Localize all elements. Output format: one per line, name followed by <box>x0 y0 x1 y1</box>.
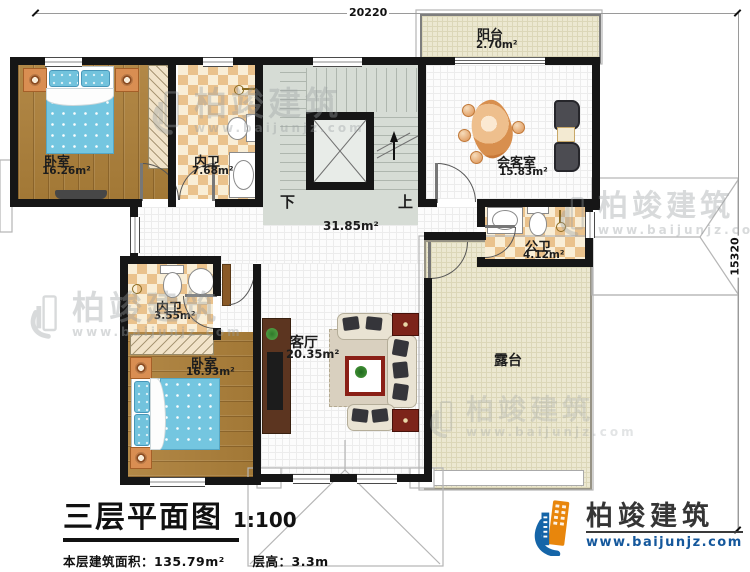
room-area-bedroom-tl: 16.26m² <box>42 165 91 177</box>
dimension-top-value: 20220 <box>347 6 389 19</box>
plan-scale: 1:100 <box>233 508 297 532</box>
stair-down-label: 下 <box>280 191 295 212</box>
room-area-reception: 15.83m² <box>499 166 548 178</box>
room-area-bedroom-bl: 16.93m² <box>186 366 235 378</box>
floor-plan-canvas: 20220 15320 <box>0 0 750 572</box>
dimension-right-value: 15320 <box>729 235 742 277</box>
room-area-balcony: 2.70m² <box>476 39 517 51</box>
brand-url: www.baijunjz.com <box>586 531 743 550</box>
stair-symbols <box>0 0 750 572</box>
brand-logo: 柏竣建筑 www.baijunjz.com <box>530 496 743 556</box>
room-area-bath-tl: 7.68m² <box>192 165 233 177</box>
area-label: 本层建筑面积： <box>63 554 154 569</box>
brand-name: 柏竣建筑 <box>586 502 743 532</box>
hall-area: 31.85m² <box>323 219 379 233</box>
plan-notes: 本层建筑面积：135.79m² 层高：3.3m <box>63 551 329 570</box>
room-area-living: 20.35m² <box>286 347 339 361</box>
title-block: 三层平面图 1:100 本层建筑面积：135.79m² 层高：3.3m <box>63 492 329 570</box>
stair-up-label: 上 <box>398 191 413 212</box>
room-label-terrace: 露台 <box>494 350 522 370</box>
brand-logo-icon <box>530 496 578 556</box>
height-value: 3.3m <box>292 554 329 569</box>
room-area-public-bath: 4.12m² <box>523 249 564 261</box>
height-label: 层高： <box>252 554 291 569</box>
title-underline <box>63 538 239 542</box>
area-value: 135.79m² <box>154 554 225 569</box>
plan-title: 三层平面图 <box>63 492 223 536</box>
room-area-bath-bl: 3.55m² <box>154 310 195 322</box>
